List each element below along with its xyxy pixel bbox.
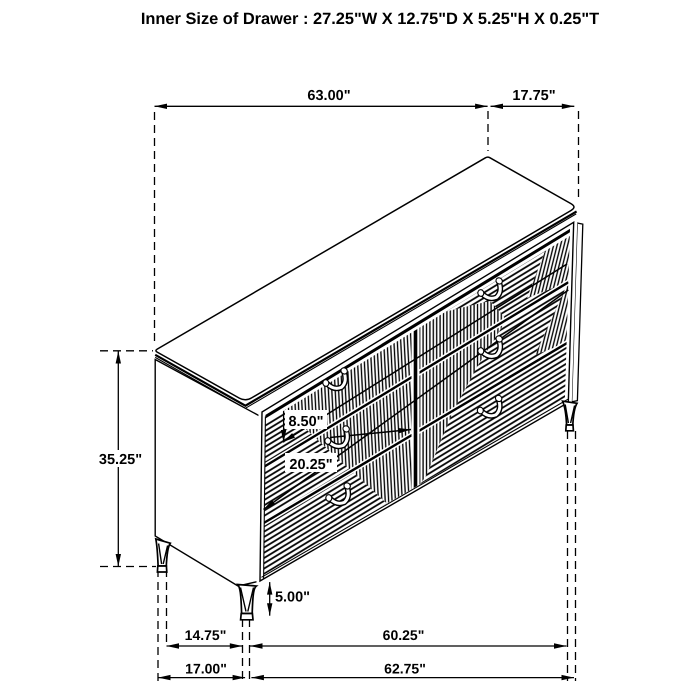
svg-text:17.75": 17.75" — [512, 88, 555, 104]
svg-text:14.75": 14.75" — [185, 627, 227, 643]
svg-text:60.25": 60.25" — [383, 627, 425, 643]
svg-text:17.00": 17.00" — [185, 661, 227, 677]
svg-text:62.75": 62.75" — [384, 661, 426, 677]
svg-text:Inner Size of Drawer : 27.25"W: Inner Size of Drawer : 27.25"W X 12.75"D… — [141, 10, 599, 28]
svg-text:5.00": 5.00" — [275, 590, 310, 606]
svg-text:35.25": 35.25" — [99, 452, 142, 468]
svg-text:20.25": 20.25" — [289, 457, 332, 473]
svg-text:8.50": 8.50" — [288, 414, 323, 430]
svg-text:63.00": 63.00" — [307, 88, 350, 104]
